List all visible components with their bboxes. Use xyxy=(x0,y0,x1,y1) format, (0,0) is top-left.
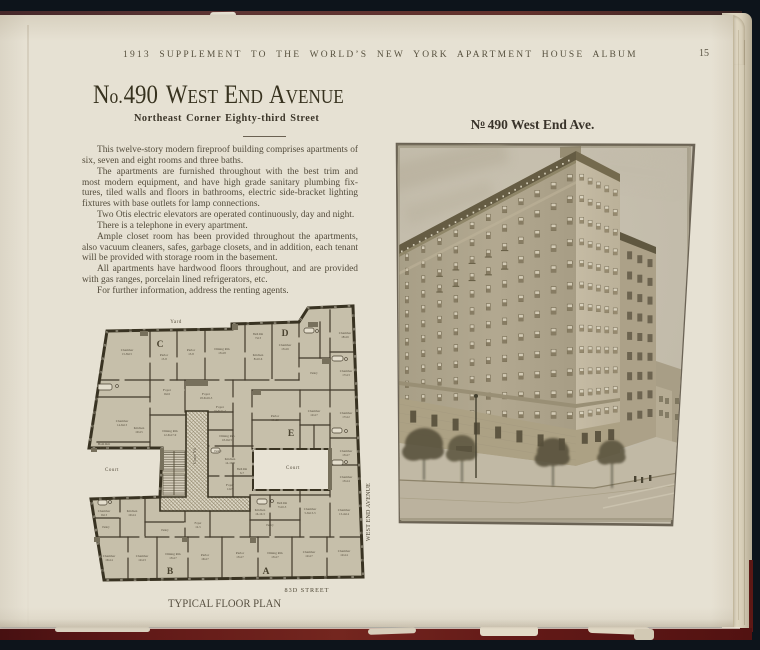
svg-text:15x17: 15x17 xyxy=(236,555,244,559)
svg-text:18x16: 18x16 xyxy=(341,335,349,339)
svg-text:13-4x14: 13-4x14 xyxy=(339,512,349,516)
svg-text:9x16: 9x16 xyxy=(164,392,171,396)
svg-text:5-6x13-3: 5-6x13-3 xyxy=(305,511,316,515)
svg-text:83D STREET: 83D STREET xyxy=(285,587,330,594)
svg-text:A: A xyxy=(263,567,270,577)
svg-text:B: B xyxy=(167,567,174,577)
svg-text:10x15: 10x15 xyxy=(135,430,143,434)
svg-text:12-6x17-9: 12-6x17-9 xyxy=(164,433,177,437)
svg-text:15x16: 15x16 xyxy=(281,347,289,351)
svg-text:18-6x16-3: 18-6x16-3 xyxy=(200,396,213,400)
svg-text:13x17: 13x17 xyxy=(342,453,350,457)
svg-text:10x14: 10x14 xyxy=(128,513,136,517)
svg-text:16-10-3: 16-10-3 xyxy=(255,512,265,516)
svg-text:13x14: 13x14 xyxy=(342,479,350,483)
svg-text:7x13: 7x13 xyxy=(255,336,262,340)
svg-text:18-9x15: 18-9x15 xyxy=(222,438,232,442)
svg-text:Pantry: Pantry xyxy=(310,372,318,375)
svg-text:12x13: 12x13 xyxy=(138,558,146,562)
svg-text:17x12: 17x12 xyxy=(342,415,350,419)
svg-text:7x10-3: 7x10-3 xyxy=(278,505,287,509)
svg-text:15-8: 15-8 xyxy=(161,357,167,361)
svg-text:D: D xyxy=(282,329,289,339)
svg-text:5x10-3: 5x10-3 xyxy=(100,446,109,450)
svg-text:12x14: 12x14 xyxy=(340,553,348,557)
svg-text:Pantry: Pantry xyxy=(102,526,110,529)
svg-text:Pantry: Pantry xyxy=(266,524,274,527)
svg-text:16x14: 16x14 xyxy=(105,558,113,562)
svg-text:12x17: 12x17 xyxy=(305,554,313,558)
svg-text:13x17: 13x17 xyxy=(169,556,177,560)
svg-text:13-8: 13-8 xyxy=(188,352,194,356)
svg-text:Court: Court xyxy=(286,466,300,471)
svg-text:Pantry: Pantry xyxy=(214,450,222,453)
svg-text:16x17: 16x17 xyxy=(201,557,209,561)
svg-text:15-8x15: 15-8x15 xyxy=(122,352,132,356)
svg-text:12x5: 12x5 xyxy=(227,487,234,491)
svg-text:Court: Court xyxy=(105,468,119,473)
svg-text:E: E xyxy=(288,429,294,439)
svg-text:Pantry: Pantry xyxy=(161,529,169,532)
svg-text:8x10-6: 8x10-6 xyxy=(254,357,263,361)
svg-text:9x13: 9x13 xyxy=(101,513,108,517)
svg-text:13x22: 13x22 xyxy=(271,418,279,422)
svg-text:14-10-3: 14-10-3 xyxy=(225,461,235,465)
svg-text:6-7: 6-7 xyxy=(240,471,244,475)
svg-text:C: C xyxy=(157,340,164,350)
svg-text:12x17: 12x17 xyxy=(310,413,318,417)
svg-text:14-6x13: 14-6x13 xyxy=(117,423,127,427)
svg-text:13x17: 13x17 xyxy=(271,555,279,559)
svg-text:17x13: 17x13 xyxy=(342,373,350,377)
svg-text:15x18: 15x18 xyxy=(218,351,226,355)
svg-text:12-5: 12-5 xyxy=(195,525,201,529)
svg-text:Court Yd: Court Yd xyxy=(192,447,197,464)
svg-text:WEST END AVENUE: WEST END AVENUE xyxy=(366,483,372,541)
svg-text:Yard: Yard xyxy=(170,320,182,325)
svg-text:10-6x11-2: 10-6x11-2 xyxy=(214,409,227,413)
